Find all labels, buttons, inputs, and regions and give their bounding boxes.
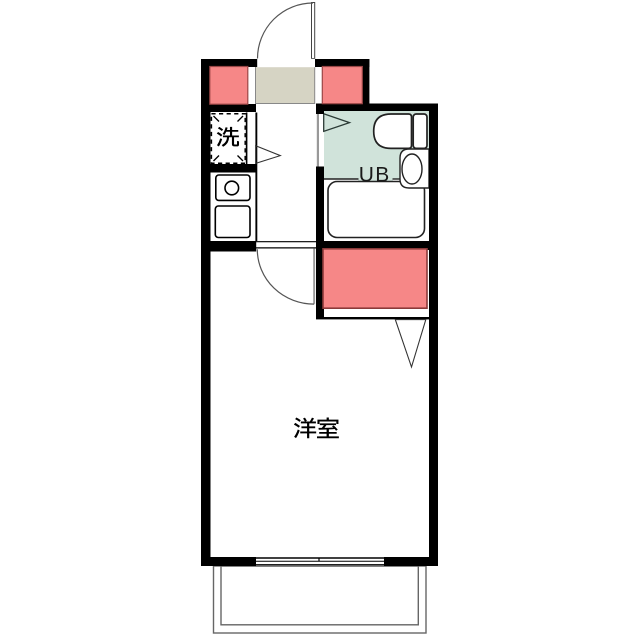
svg-text:UB: UB — [359, 163, 391, 186]
